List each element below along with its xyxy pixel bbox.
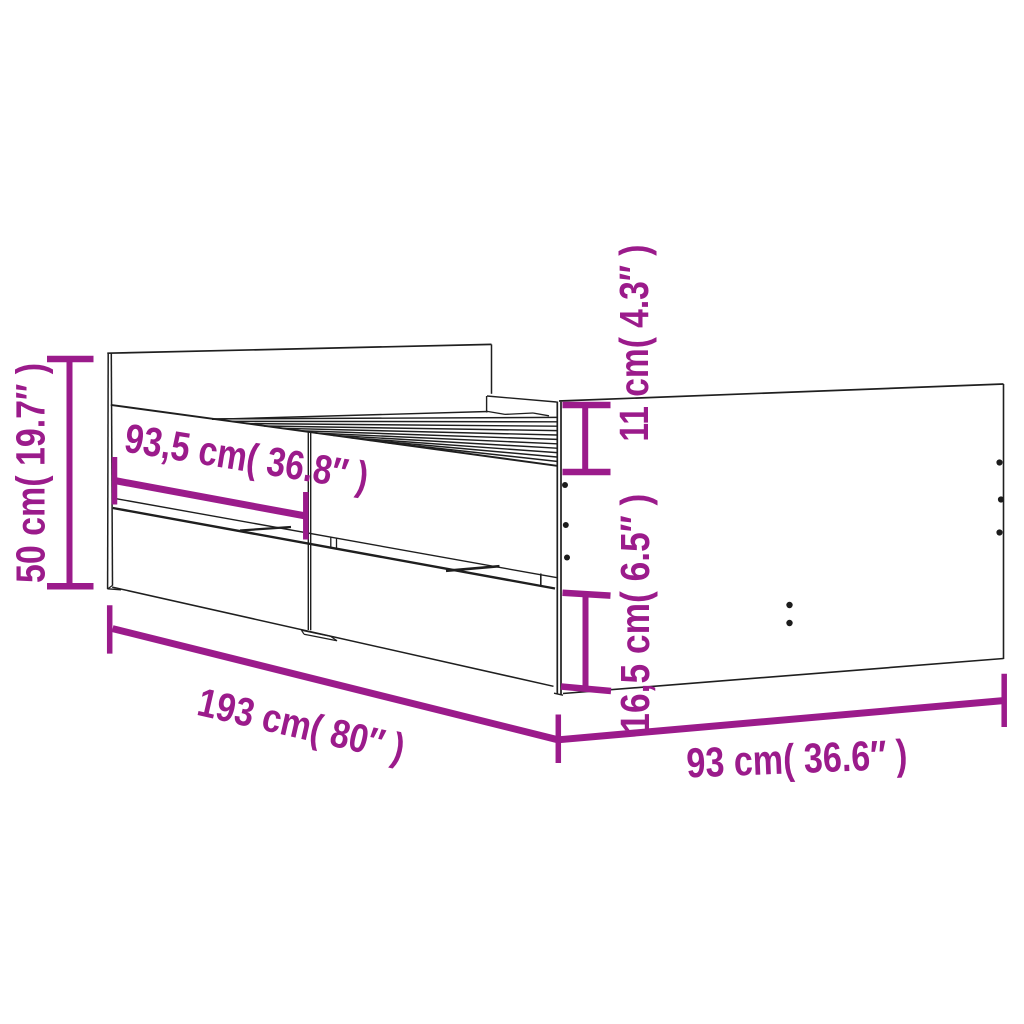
svg-text:16,5 cm( 6.5″ ): 16,5 cm( 6.5″ )	[612, 494, 658, 733]
svg-text:93 cm( 36.6″ ): 93 cm( 36.6″ )	[685, 731, 908, 787]
svg-text:50 cm( 19.7″ ): 50 cm( 19.7″ )	[8, 363, 54, 583]
svg-text:11 cm( 4.3″ ): 11 cm( 4.3″ )	[611, 245, 657, 442]
